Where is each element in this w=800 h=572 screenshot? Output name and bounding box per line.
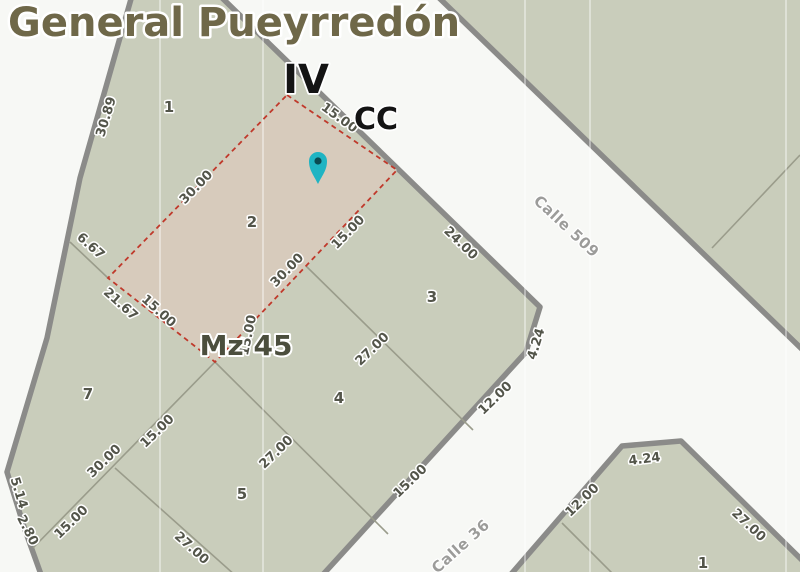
block-label-mz45: Mz 45: [200, 329, 293, 362]
parcel-number: 5: [237, 485, 247, 503]
cadastral-map[interactable]: Calle 509Calle 36 30.896.6730.0015.0015.…: [0, 0, 800, 572]
parcel-number: 1: [164, 98, 174, 116]
parcel-number: 1: [698, 554, 708, 572]
street-label: Calle 509: [530, 192, 603, 262]
street-label: Calle 36: [428, 516, 493, 572]
parcel-number: 7: [83, 385, 93, 403]
zone-label-iv: IV: [283, 57, 329, 103]
district-title: General Pueyrredón: [8, 0, 460, 46]
marker-pin-dot: [314, 157, 321, 164]
zone-label-cc: CC: [354, 102, 398, 137]
parcel-number: 4: [334, 389, 344, 407]
parcel-number: 2: [247, 213, 257, 231]
cadastral-map-viewport[interactable]: Calle 509Calle 36 30.896.6730.0015.0015.…: [0, 0, 800, 572]
parcel-number: 3: [427, 288, 437, 306]
